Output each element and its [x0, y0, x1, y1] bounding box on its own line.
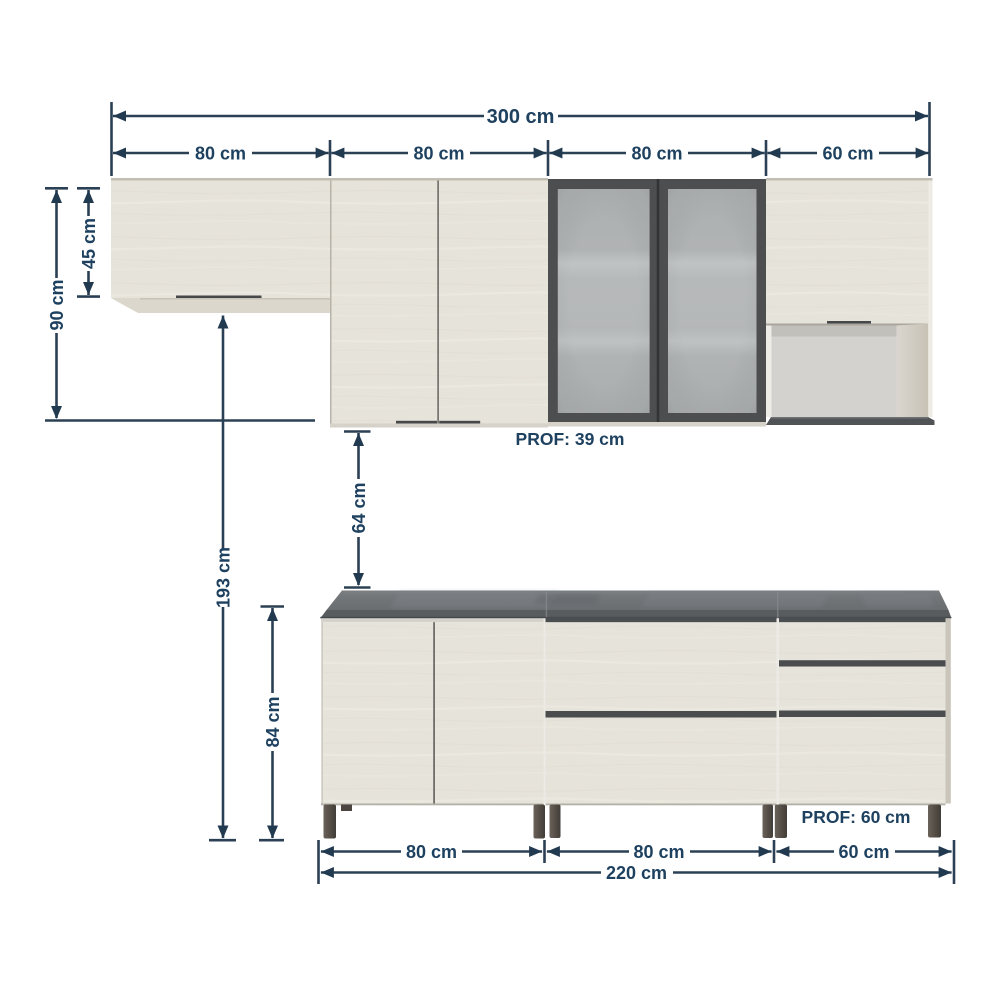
- svg-text:80 cm: 80 cm: [195, 144, 246, 164]
- svg-text:60 cm: 60 cm: [822, 144, 873, 164]
- svg-text:PROF: 39 cm: PROF: 39 cm: [516, 429, 625, 449]
- svg-text:80 cm: 80 cm: [406, 842, 457, 862]
- svg-text:193 cm: 193 cm: [214, 547, 234, 608]
- svg-text:80 cm: 80 cm: [413, 144, 464, 164]
- svg-text:PROF: 60 cm: PROF: 60 cm: [802, 807, 911, 827]
- svg-text:80 cm: 80 cm: [633, 842, 684, 862]
- svg-text:64 cm: 64 cm: [349, 482, 369, 533]
- svg-text:80 cm: 80 cm: [631, 144, 682, 164]
- svg-text:60 cm: 60 cm: [838, 842, 889, 862]
- svg-text:45 cm: 45 cm: [79, 218, 99, 269]
- svg-text:300 cm: 300 cm: [487, 106, 555, 128]
- svg-text:220 cm: 220 cm: [606, 863, 667, 883]
- svg-text:84 cm: 84 cm: [263, 696, 283, 747]
- svg-text:90 cm: 90 cm: [47, 279, 67, 330]
